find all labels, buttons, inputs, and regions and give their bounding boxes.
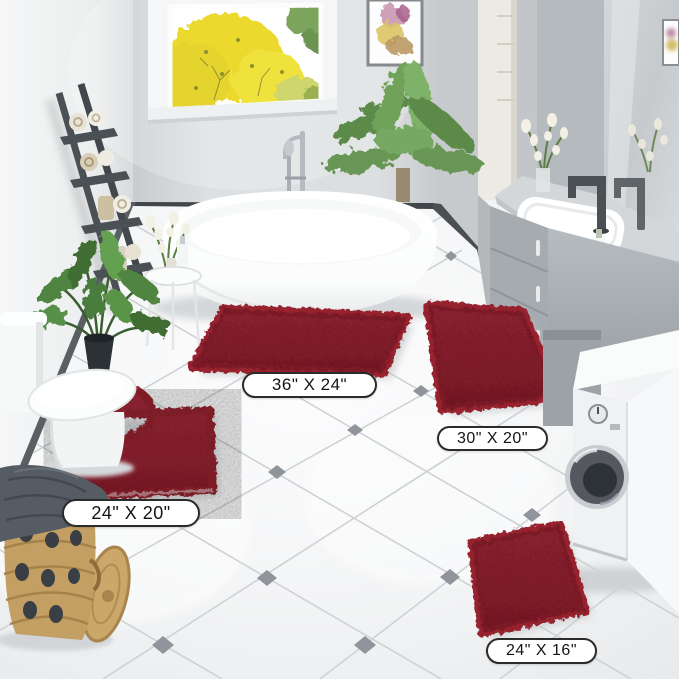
size-label-30x20-text: 30" X 20": [457, 430, 528, 448]
window: [148, 0, 337, 124]
size-label-24x20-text: 24" X 20": [91, 503, 170, 524]
right-wall-cabinet: [478, 0, 517, 200]
size-label-36x24: 36" X 24": [242, 372, 377, 398]
size-label-24x20: 24" X 20": [62, 499, 200, 527]
rug-36x24: [185, 300, 415, 382]
size-label-36x24-text: 36" X 24": [272, 375, 347, 395]
size-label-24x16-text: 24" X 16": [506, 642, 577, 660]
wall-art-frame: [368, 0, 422, 65]
washer-drum: [565, 445, 629, 509]
right-wall-panel: [517, 0, 604, 200]
size-label-24x16: 24" X 16": [486, 638, 597, 664]
size-label-30x20: 30" X 20": [437, 426, 548, 451]
bathroom-product-photo: 36" X 24" 30" X 20" 24" X 20" 24" X 16": [0, 0, 679, 679]
bathroom-scene: [0, 0, 679, 679]
